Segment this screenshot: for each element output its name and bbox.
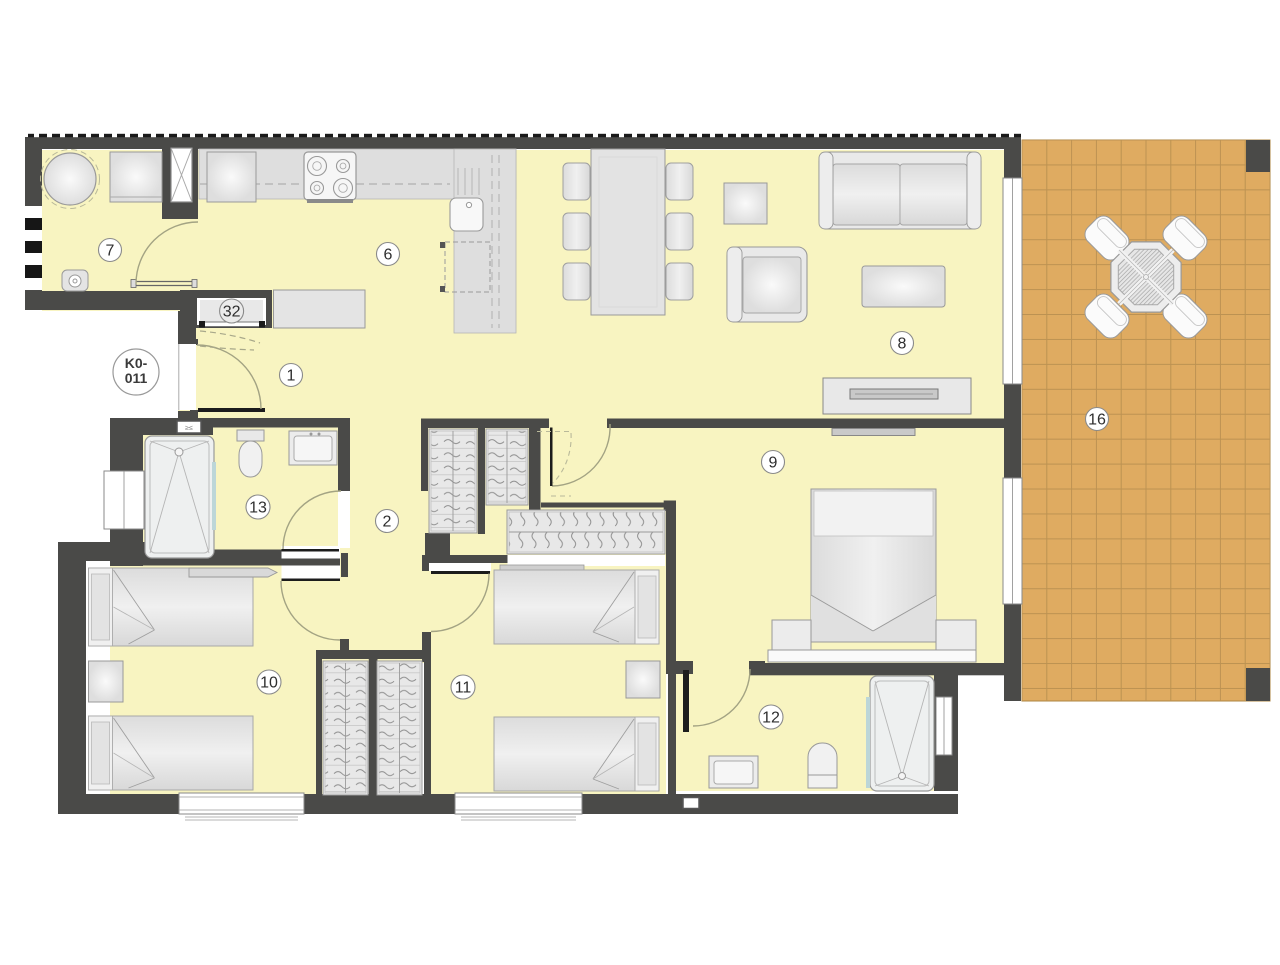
svg-text:K0-: K0- [125, 355, 148, 371]
svg-text:10: 10 [260, 675, 278, 692]
svg-text:32: 32 [223, 304, 241, 321]
svg-text:13: 13 [249, 500, 267, 517]
svg-text:9: 9 [769, 455, 778, 472]
svg-text:1: 1 [287, 368, 296, 385]
svg-text:11: 11 [455, 680, 472, 697]
svg-text:7: 7 [106, 243, 115, 260]
svg-text:011: 011 [125, 370, 148, 386]
svg-text:2: 2 [383, 514, 392, 531]
svg-text:8: 8 [898, 336, 907, 353]
svg-text:12: 12 [762, 710, 780, 727]
svg-text:≥≤: ≥≤ [185, 425, 193, 432]
svg-text:6: 6 [384, 247, 393, 264]
svg-text:16: 16 [1088, 412, 1106, 429]
